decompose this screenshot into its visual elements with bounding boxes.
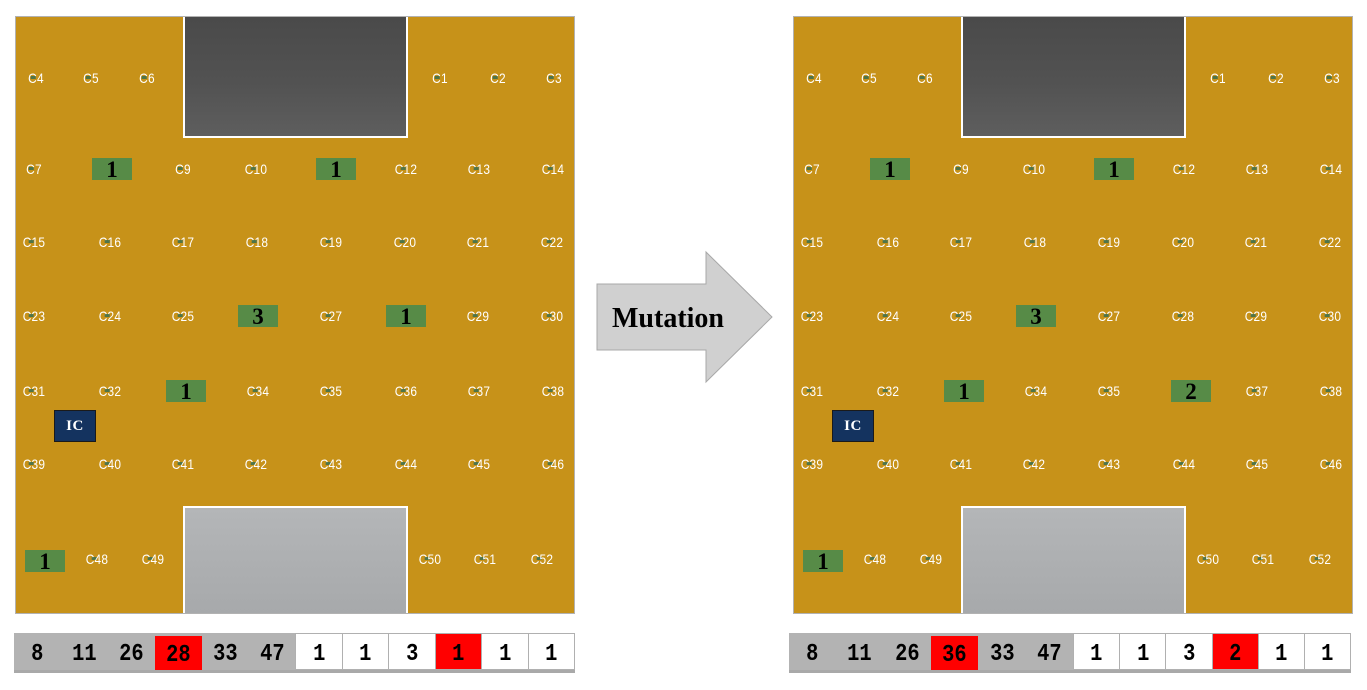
svg-text:Mutation: Mutation [612, 303, 724, 334]
